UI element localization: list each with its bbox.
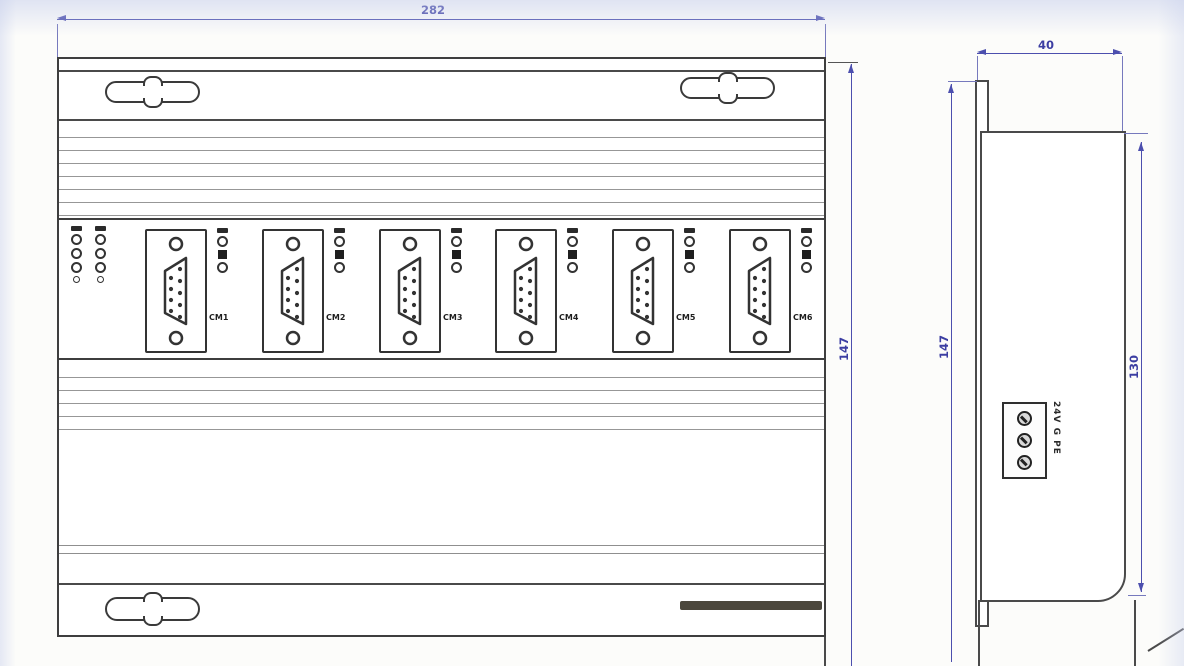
led-dot xyxy=(95,234,106,245)
terminal-label: 24V G PE xyxy=(1051,401,1061,487)
port-led-column xyxy=(334,228,345,276)
din-clip xyxy=(978,600,1136,666)
led-dot xyxy=(217,262,228,273)
dim-width-label: 282 xyxy=(421,3,445,17)
groove-line xyxy=(59,545,824,546)
mounting-slot-bottom-left xyxy=(105,597,200,621)
bottom-flange-line xyxy=(59,583,824,585)
led-dot xyxy=(95,262,106,273)
dim-line-width xyxy=(57,19,825,20)
led-dot-lit xyxy=(452,250,461,259)
side-view-body: 24V G PE xyxy=(980,131,1126,602)
port-led-column xyxy=(684,228,695,276)
groove-line xyxy=(59,553,824,554)
led-dot xyxy=(71,262,82,273)
terminal-screw xyxy=(1017,455,1032,470)
db9-connector xyxy=(262,229,324,353)
port-label: CM6 xyxy=(793,313,829,322)
led-dot-lit xyxy=(685,250,694,259)
scan-tint-left xyxy=(0,0,16,666)
flange-band-line xyxy=(59,119,824,121)
scan-tint-right xyxy=(1158,0,1184,666)
led-dot xyxy=(567,262,578,273)
top-flange-line xyxy=(59,70,824,72)
port-label: CM5 xyxy=(676,313,712,322)
dim-arrow xyxy=(848,64,854,73)
led-label-blob xyxy=(451,228,462,233)
led-dot xyxy=(217,236,228,247)
db9-connector xyxy=(612,229,674,353)
port-led-column xyxy=(801,228,812,276)
dim-arrow xyxy=(57,15,66,21)
led-dot xyxy=(801,262,812,273)
led-label-blob xyxy=(334,228,345,233)
extrusion-grooves-upper xyxy=(59,125,824,219)
dim-line-body-height xyxy=(1141,142,1142,592)
extrusion-grooves-lower xyxy=(59,365,824,433)
dim-line-depth xyxy=(977,53,1122,54)
dim-arrow xyxy=(1138,583,1144,592)
dim-arrow xyxy=(1138,142,1144,151)
dim-line-side-height xyxy=(951,84,952,662)
scan-tint-top xyxy=(0,0,1184,36)
serial-port-group: CM3 xyxy=(379,220,489,360)
dim-extension xyxy=(825,24,826,57)
dim-extension xyxy=(948,81,977,82)
leader-line xyxy=(1147,628,1184,652)
db9-connector xyxy=(145,229,207,353)
dim-arrow xyxy=(1113,49,1122,55)
dim-extension xyxy=(57,24,58,57)
led-dot xyxy=(334,262,345,273)
led-dot-lit xyxy=(568,250,577,259)
led-dot xyxy=(97,276,104,283)
serial-port-group: CM2 xyxy=(262,220,372,360)
port-led-column xyxy=(217,228,228,276)
terminal-screw xyxy=(1017,411,1032,426)
power-terminal-block xyxy=(1002,402,1047,479)
serial-port-group: CM4 xyxy=(495,220,605,360)
led-dot xyxy=(71,234,82,245)
dim-extension xyxy=(1122,56,1123,131)
led-dot xyxy=(684,262,695,273)
led-dot xyxy=(801,236,812,247)
led-label-blob xyxy=(95,226,106,231)
port-label: CM4 xyxy=(559,313,595,322)
db9-connector-icon xyxy=(264,231,322,351)
led-column-power xyxy=(71,226,82,286)
port-led-column xyxy=(567,228,578,276)
port-led-column xyxy=(451,228,462,276)
dim-arrow xyxy=(977,49,986,55)
dim-side-height-label: 147 xyxy=(937,331,951,363)
dim-front-height-label: 147 xyxy=(837,333,851,365)
db9-connector-icon xyxy=(731,231,789,351)
led-dot xyxy=(451,262,462,273)
led-dot xyxy=(684,236,695,247)
port-label: CM3 xyxy=(443,313,479,322)
dim-extension xyxy=(828,62,858,63)
mounting-slot-top-left xyxy=(105,81,200,103)
led-dot xyxy=(95,248,106,259)
db9-connector-icon xyxy=(614,231,672,351)
dim-body-height-label: 130 xyxy=(1127,351,1141,383)
dim-arrow xyxy=(948,84,954,93)
led-dot xyxy=(567,236,578,247)
db9-connector-icon xyxy=(381,231,439,351)
db9-connector xyxy=(379,229,441,353)
edge-extension xyxy=(824,637,826,666)
serial-port-group: CM6 xyxy=(729,220,839,360)
led-label-blob xyxy=(71,226,82,231)
din-rail-bar xyxy=(680,601,822,610)
led-dot-lit xyxy=(335,250,344,259)
connector-panel: CM1 CM2 xyxy=(59,218,824,360)
db9-connector xyxy=(495,229,557,353)
led-dot xyxy=(71,248,82,259)
db9-connector-icon xyxy=(147,231,205,351)
led-dot xyxy=(73,276,80,283)
dim-arrow xyxy=(816,15,825,21)
terminal-screw xyxy=(1017,433,1032,448)
front-view: CM1 CM2 xyxy=(57,57,826,637)
dim-line-front-height xyxy=(851,64,852,666)
led-dot-lit xyxy=(218,250,227,259)
led-label-blob xyxy=(801,228,812,233)
dim-extension xyxy=(977,56,978,80)
dim-extension xyxy=(1124,133,1148,134)
led-label-blob xyxy=(684,228,695,233)
port-label: CM2 xyxy=(326,313,362,322)
serial-port-group: CM1 xyxy=(145,220,255,360)
led-column-status xyxy=(95,226,106,286)
led-label-blob xyxy=(567,228,578,233)
dim-extension xyxy=(1128,595,1146,596)
mounting-slot-top-right xyxy=(680,77,775,99)
led-dot xyxy=(451,236,462,247)
dim-depth-label: 40 xyxy=(1038,38,1054,52)
db9-connector-icon xyxy=(497,231,555,351)
technical-drawing-canvas: CM1 CM2 xyxy=(0,0,1184,666)
led-dot-lit xyxy=(802,250,811,259)
led-label-blob xyxy=(217,228,228,233)
serial-port-group: CM5 xyxy=(612,220,722,360)
port-label: CM1 xyxy=(209,313,245,322)
led-dot xyxy=(334,236,345,247)
status-led-cluster xyxy=(71,226,106,286)
db9-connector xyxy=(729,229,791,353)
